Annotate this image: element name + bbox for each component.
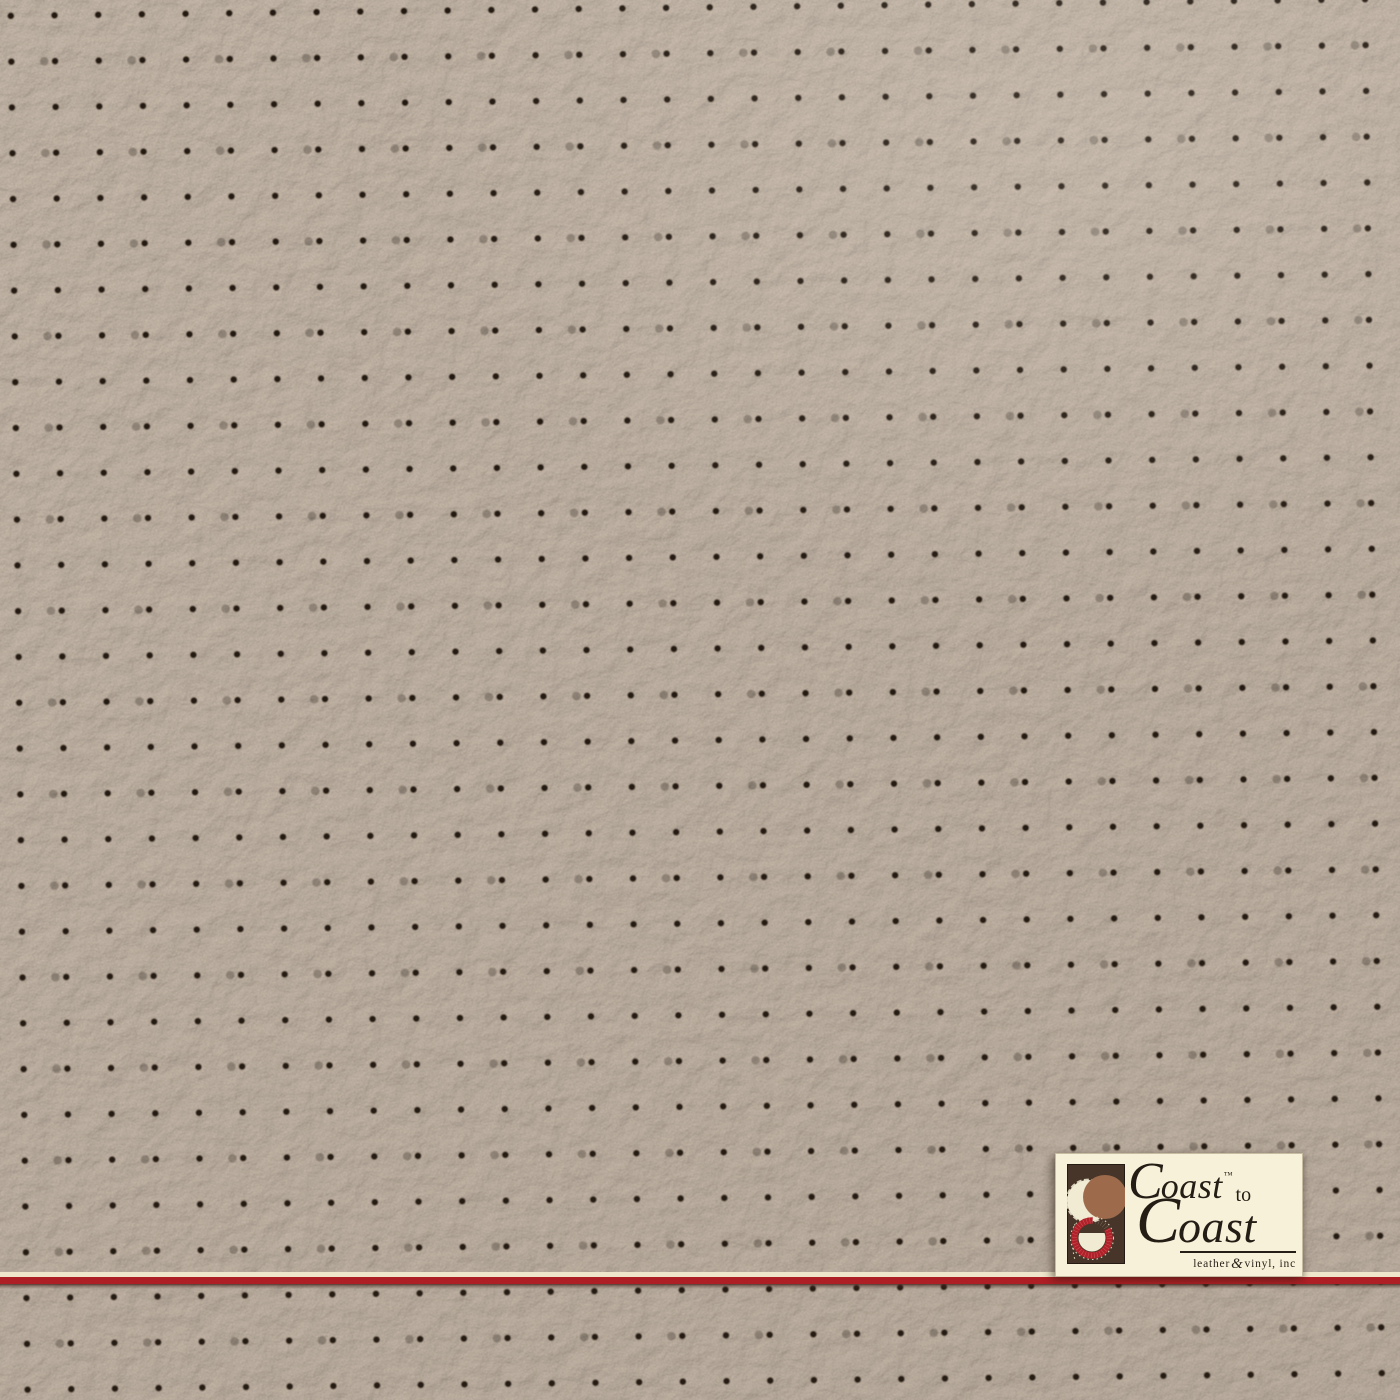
logo-divider-rule xyxy=(1180,1251,1296,1253)
leather-swatch-photo: Coast™to Coast leather&vinyl, inc xyxy=(0,0,1400,1400)
brand-tagline: leather&vinyl, inc xyxy=(1193,1255,1296,1272)
tagline-ampersand: & xyxy=(1231,1256,1243,1272)
brand-logo-panel: Coast™to Coast leather&vinyl, inc xyxy=(1055,1153,1303,1277)
brand-word-bottom-initial: C xyxy=(1136,1184,1178,1257)
logo-mark-sienna-circle xyxy=(1083,1175,1125,1219)
coast-to-coast-logo-icon xyxy=(1067,1164,1125,1264)
tagline-vinyl-inc: vinyl, inc xyxy=(1245,1258,1296,1270)
brand-word-bottom-rest: oast xyxy=(1178,1201,1257,1252)
trademark-symbol: ™ xyxy=(1224,1170,1233,1180)
brand-word-bottom: Coast xyxy=(1136,1188,1257,1254)
tagline-leather: leather xyxy=(1193,1258,1230,1270)
